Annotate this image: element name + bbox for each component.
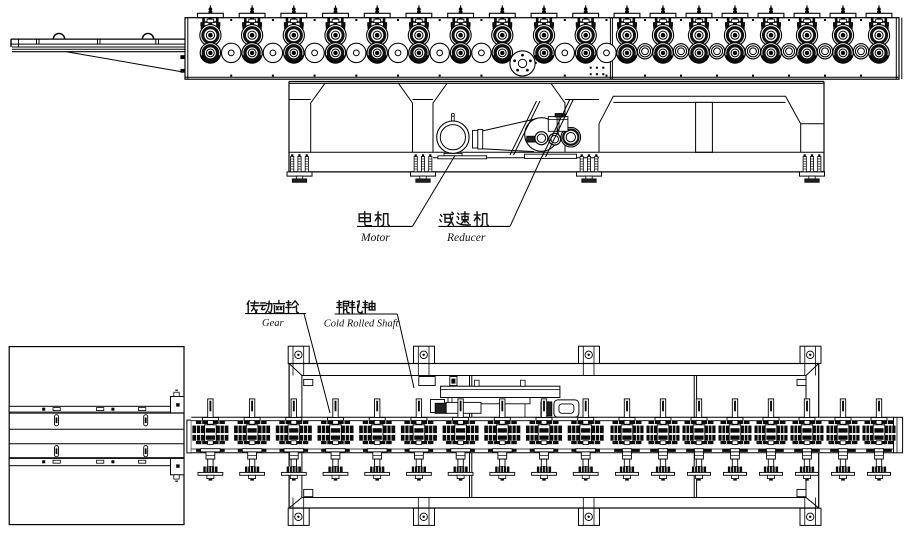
svg-text:Motor: Motor: [360, 232, 390, 244]
svg-text:Cold Rolled Shaft: Cold Rolled Shaft: [324, 318, 400, 329]
svg-text:Reducer: Reducer: [446, 232, 486, 244]
svg-text:Gear: Gear: [262, 318, 284, 329]
